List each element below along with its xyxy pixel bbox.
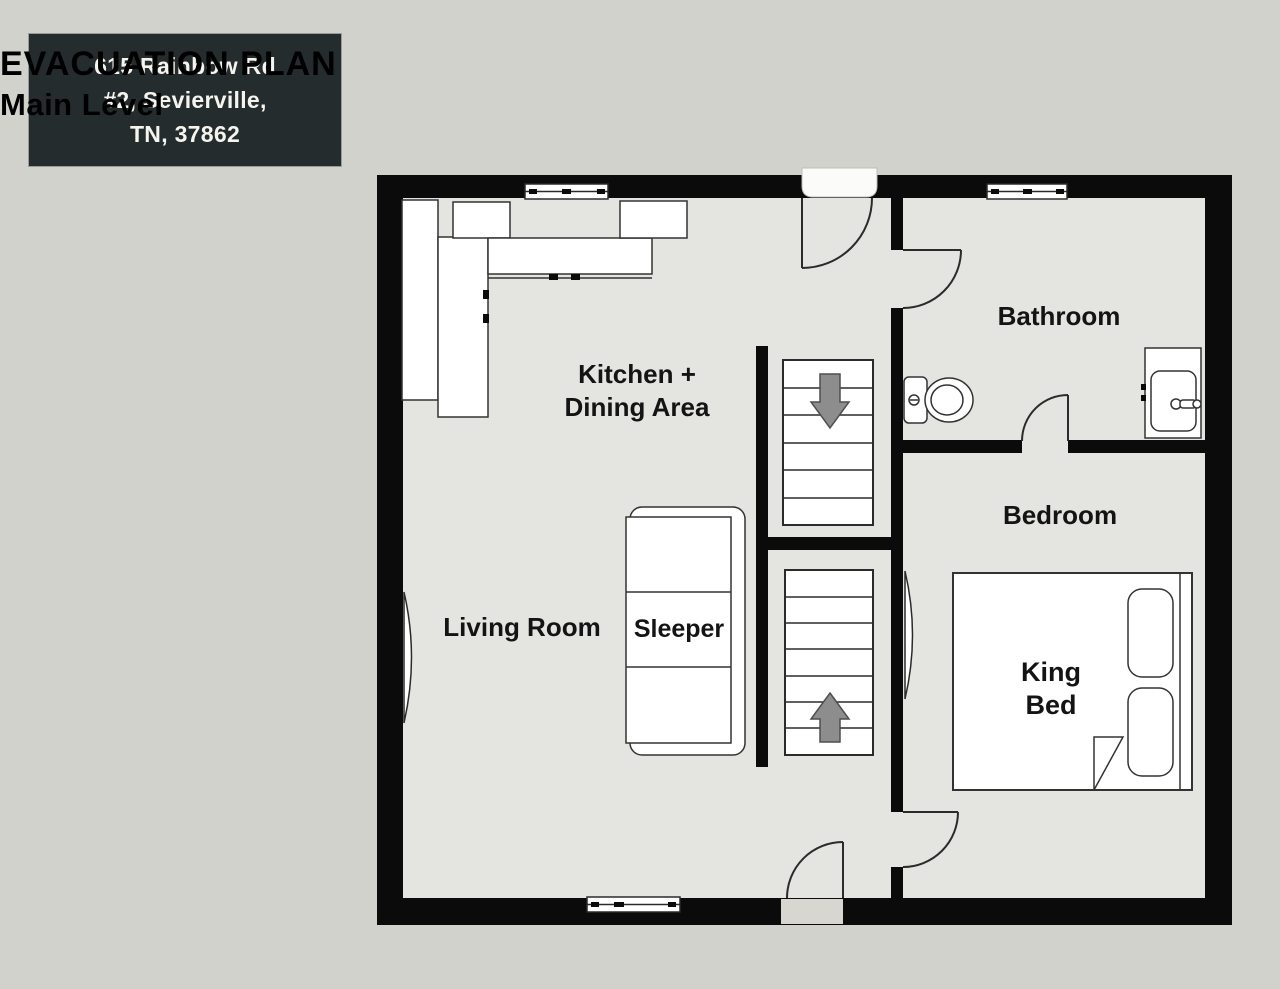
furniture-label-sleeper: Sleeper xyxy=(634,615,725,643)
counter-top-left xyxy=(453,202,510,238)
toilet-bowl-inner xyxy=(931,385,963,415)
counter-top-right xyxy=(620,201,687,238)
wall-bedroom-door-stub xyxy=(891,867,903,898)
toilet-icon xyxy=(904,377,973,423)
counter-peninsula xyxy=(488,238,652,274)
window-bathroom xyxy=(987,184,1067,199)
entry-stoop-top xyxy=(802,168,877,197)
vanity-handle xyxy=(1141,384,1146,390)
faucet-base xyxy=(1193,400,1201,408)
wall-stairs-middle xyxy=(756,537,903,550)
counter-handle xyxy=(483,290,489,299)
stairs-lower xyxy=(785,570,873,755)
counter-handle xyxy=(549,274,558,280)
room-label-bathroom: Bathroom xyxy=(998,301,1121,331)
counter-left-inner xyxy=(438,237,488,417)
stairs-upper xyxy=(783,360,873,525)
sink-icon xyxy=(1141,348,1201,438)
vanity-handle xyxy=(1141,395,1146,401)
counter-left-tall xyxy=(402,200,438,400)
furniture-label-bed: Bed xyxy=(1025,690,1076,720)
counter-handle xyxy=(571,274,580,280)
wall-right xyxy=(1205,175,1232,925)
pillow xyxy=(1128,589,1173,677)
entry-threshold-bottom xyxy=(781,899,843,924)
wall-bathroom-left-upper xyxy=(891,198,903,250)
wall-bathroom-bottom-right xyxy=(1068,440,1205,453)
wall-stairs-left xyxy=(756,346,768,767)
furniture-label-king: King xyxy=(1021,657,1081,687)
room-label-bedroom: Bedroom xyxy=(1003,500,1117,530)
counter-handle xyxy=(483,314,489,323)
room-label-kitchen-line1: Kitchen + xyxy=(578,359,696,389)
window-living-room xyxy=(587,897,680,912)
pillow xyxy=(1128,688,1173,776)
wall-center-vertical xyxy=(891,308,903,812)
room-label-living-room: Living Room xyxy=(443,612,600,642)
room-label-kitchen-line2: Dining Area xyxy=(565,392,710,422)
floorplan-svg: Kitchen + Dining Area Bathroom Bedroom L… xyxy=(0,0,1280,989)
wall-bathroom-bottom-left xyxy=(903,440,1022,453)
evacuation-plan-page: 615 Rainbow Rd #2, Sevierville, TN, 3786… xyxy=(0,0,1280,989)
wall-left xyxy=(377,175,403,925)
window-kitchen xyxy=(525,184,608,199)
